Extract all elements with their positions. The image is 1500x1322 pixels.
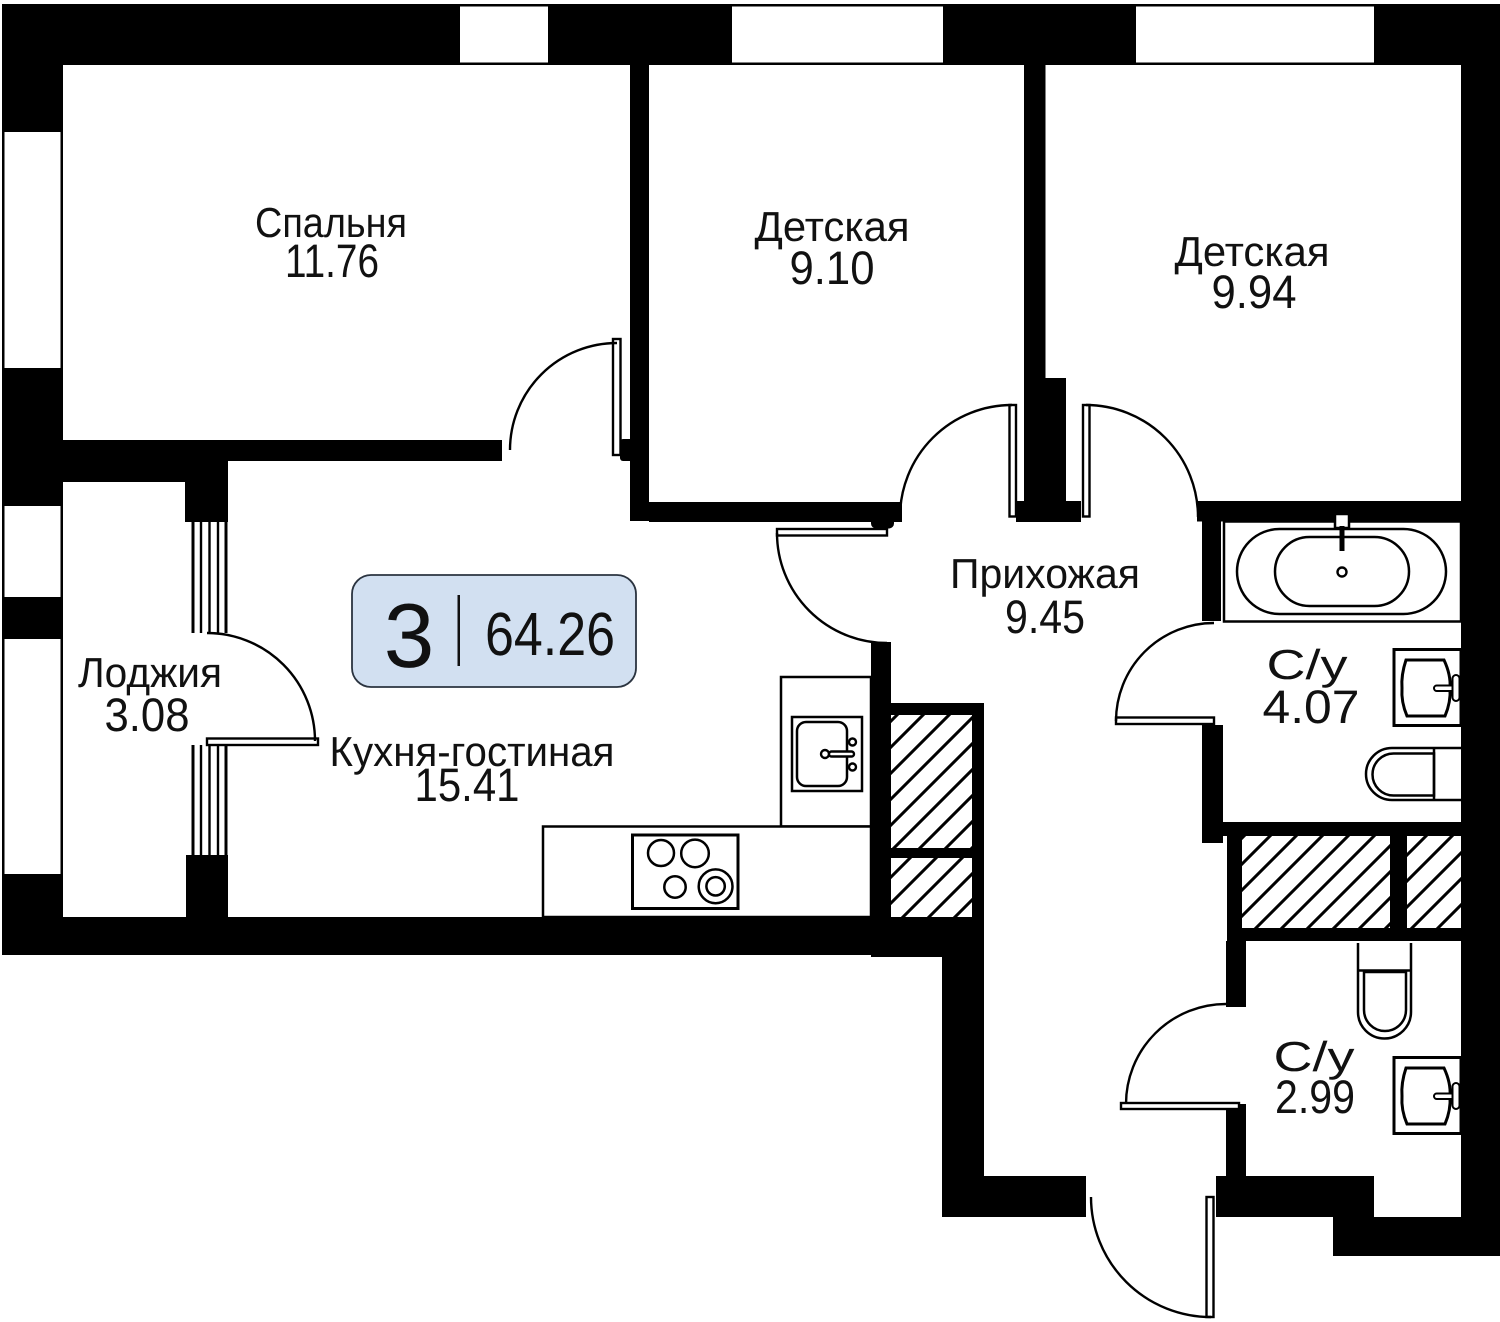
svg-text:15.41: 15.41 [415,758,520,811]
svg-text:4.07: 4.07 [1263,680,1360,733]
svg-text:3: 3 [384,586,435,687]
svg-text:9.10: 9.10 [790,241,875,294]
svg-text:9.94: 9.94 [1212,265,1297,318]
svg-text:64.26: 64.26 [485,600,615,668]
svg-text:3.08: 3.08 [105,688,190,741]
svg-text:2.99: 2.99 [1275,1070,1355,1123]
svg-text:11.76: 11.76 [285,234,379,287]
svg-text:9.45: 9.45 [1005,590,1085,643]
